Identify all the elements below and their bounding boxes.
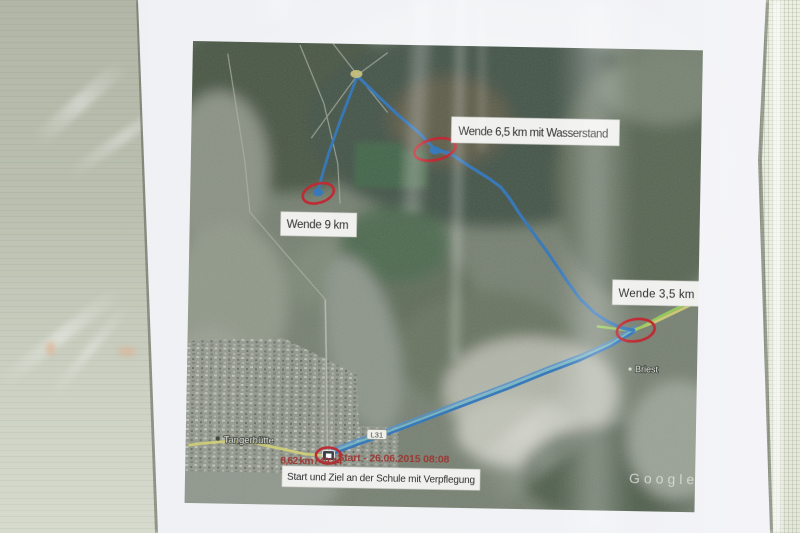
mesh-fold-highlight <box>770 0 784 533</box>
svg-text:Wende 9 km: Wende 9 km <box>287 219 349 232</box>
label-start-ziel: Start und Ziel an der Schule mit Verpfle… <box>282 466 480 491</box>
gps-start-text: Start - 26.06.2015 08:08 <box>337 452 449 466</box>
plastic-glare <box>248 0 311 24</box>
place-label-village: Briest <box>635 364 659 374</box>
google-watermark: Google <box>629 470 698 487</box>
svg-text:Wende 3,5 km: Wende 3,5 km <box>618 288 694 301</box>
road-shield-l31: L31 <box>367 429 387 439</box>
photo-of-printed-route-map: L31 Tangerhütte Briest Google Start - 26… <box>0 0 800 533</box>
svg-text:L31: L31 <box>370 430 383 439</box>
label-wende9: Wende 9 km <box>280 212 356 237</box>
map-print: L31 Tangerhütte Briest Google Start - 26… <box>185 41 703 512</box>
label-wende35: Wende 3,5 km <box>612 280 700 307</box>
label-wende65: Wende 6,5 km mit Wasserstand <box>451 117 619 146</box>
place-label-town: Tangerhütte <box>224 435 274 447</box>
